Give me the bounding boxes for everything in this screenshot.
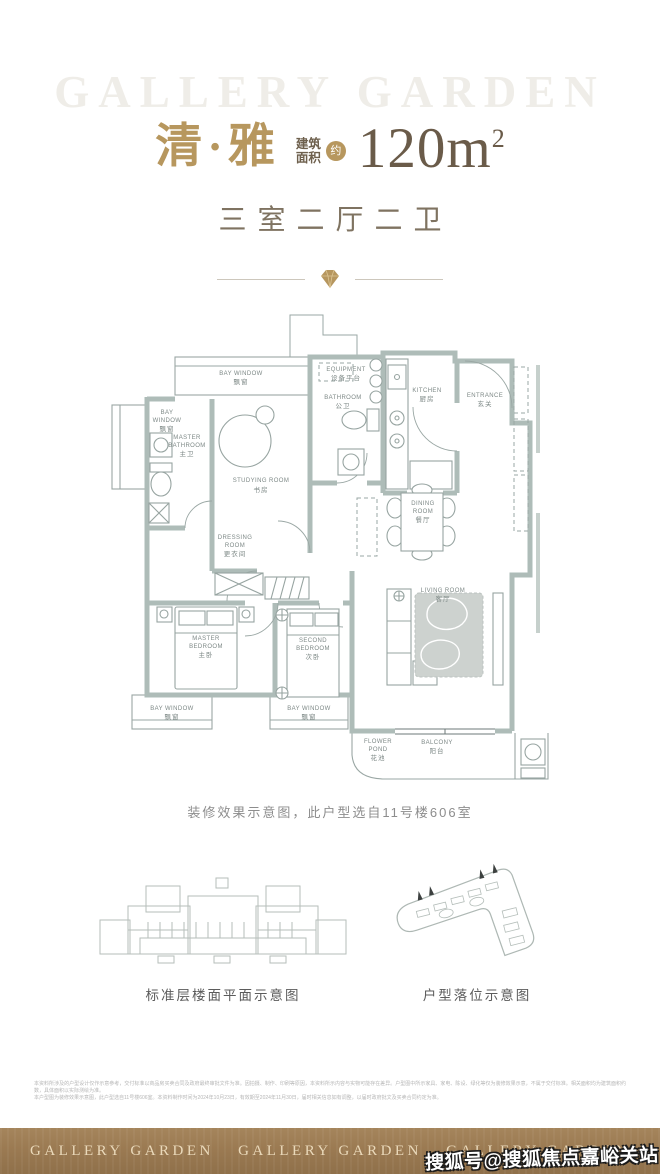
- svg-text:BAY WINDOW: BAY WINDOW: [219, 371, 262, 377]
- area-label: 建筑 面积: [296, 137, 321, 165]
- svg-text:MASTER: MASTER: [192, 636, 220, 642]
- brand-footer-left: GALLERY GARDEN: [30, 1143, 214, 1160]
- svg-text:飘窗: 飘窗: [160, 424, 175, 433]
- svg-text:次卧: 次卧: [306, 652, 321, 661]
- area-exponent: 2: [492, 124, 505, 153]
- svg-text:花池: 花池: [371, 753, 386, 762]
- svg-text:主卧: 主卧: [199, 650, 214, 659]
- poster-page: GALLERY GARDEN 清·雅 建筑 面积 约 120m2 三室二厅二卫: [0, 0, 660, 1174]
- room-label-master-bathroom: MASTER BATHROOM 主卫: [168, 435, 205, 458]
- room-label-bay-window-left: BAY WINDOW 飘窗: [153, 410, 182, 433]
- disclaimer-line1: 本资料所涉及的户型设计仅作示意参考，交付标准以商品房买卖合同及政府最终审批文件为…: [34, 1081, 626, 1095]
- room-label-entrance: ENTRANCE 玄关: [467, 393, 503, 408]
- room-label-equipment: EQUIPMENT 设备平台: [326, 367, 365, 382]
- tv-cabinet: [493, 593, 503, 685]
- svg-text:EQUIPMENT: EQUIPMENT: [326, 367, 365, 373]
- svg-text:ROOM: ROOM: [413, 509, 433, 515]
- floorplate-caption: 标准层楼面平面示意图: [86, 984, 360, 1004]
- approx-badge: 约: [326, 141, 346, 161]
- plan-caption: 装修效果示意图，此户型选自11号楼606室: [0, 802, 660, 821]
- sofa: [387, 589, 411, 685]
- svg-text:STUDYING ROOM: STUDYING ROOM: [233, 478, 290, 484]
- gem-icon: [318, 268, 342, 290]
- svg-text:ROOM: ROOM: [225, 543, 245, 549]
- svg-text:设备平台: 设备平台: [331, 373, 361, 382]
- svg-text:更衣间: 更衣间: [224, 549, 247, 558]
- siteplan-figure: 户型落位示意图: [388, 858, 566, 1004]
- disclaimer-line2: 本户型图为装修效果示意图，此户型选自11号楼606室。本资料制作时间为2024年…: [34, 1095, 626, 1102]
- siteplan-caption: 户型落位示意图: [388, 984, 566, 1004]
- svg-text:ENTRANCE: ENTRANCE: [467, 393, 503, 399]
- floorplan-svg: BAY WINDOW 飘窗 EQUIPMENT 设备平台 BATHROOM 公卫…: [95, 303, 555, 795]
- svg-text:DINING: DINING: [411, 501, 434, 507]
- svg-text:BALCONY: BALCONY: [421, 740, 452, 746]
- svg-text:BATHROOM: BATHROOM: [168, 443, 205, 449]
- room-label-balcony: BALCONY 阳台: [421, 740, 452, 755]
- master-bath-toilet: [150, 463, 172, 472]
- svg-text:MASTER: MASTER: [173, 435, 201, 441]
- svg-text:SECOND: SECOND: [299, 638, 327, 644]
- svg-text:BEDROOM: BEDROOM: [189, 644, 223, 650]
- svg-text:公卫: 公卫: [336, 402, 351, 410]
- svg-text:BATHROOM: BATHROOM: [324, 395, 361, 401]
- svg-text:POND: POND: [369, 747, 388, 753]
- svg-text:餐厅: 餐厅: [416, 515, 431, 524]
- svg-text:FLOWER: FLOWER: [364, 739, 392, 745]
- brand-footer-center: GALLERY GARDEN: [238, 1143, 422, 1160]
- room-label-bathroom: BATHROOM 公卫: [324, 395, 361, 410]
- svg-text:BAY WINDOW: BAY WINDOW: [150, 706, 193, 712]
- room-label-dressing-room: DRESSING ROOM 更衣间: [218, 535, 253, 558]
- floorplan: BAY WINDOW 飘窗 EQUIPMENT 设备平台 BATHROOM 公卫…: [95, 303, 555, 795]
- room-label-flower-pond: FLOWER POND 花池: [364, 739, 392, 762]
- svg-text:KITCHEN: KITCHEN: [412, 388, 441, 394]
- layout-subtitle: 三室二厅二卫: [0, 198, 660, 238]
- title-row: 清·雅 建筑 面积 约 120m2: [0, 120, 660, 174]
- svg-text:飘窗: 飘窗: [165, 712, 180, 721]
- svg-text:书房: 书房: [254, 485, 269, 494]
- divider: [0, 268, 660, 290]
- svg-text:玄关: 玄关: [478, 399, 493, 408]
- bathroom-toilet: [367, 409, 379, 431]
- disclaimer-text: 本资料所涉及的户型设计仅作示意参考，交付标准以商品房买卖合同及政府最终审批文件为…: [34, 1081, 626, 1103]
- room-label-kitchen: KITCHEN 厨房: [412, 388, 441, 403]
- area-value: 120m: [358, 117, 492, 180]
- floorplate-diagram: [86, 872, 360, 972]
- sliding-door: [395, 726, 495, 736]
- svg-text:厨房: 厨房: [420, 394, 435, 403]
- svg-text:BAY WINDOW: BAY WINDOW: [287, 706, 330, 712]
- svg-text:飘窗: 飘窗: [302, 712, 317, 721]
- svg-text:BAY: BAY: [161, 410, 174, 416]
- divider-line-left: [217, 279, 305, 280]
- siteplan-diagram: [388, 858, 566, 972]
- svg-text:BEDROOM: BEDROOM: [296, 646, 330, 652]
- svg-text:DRESSING: DRESSING: [218, 535, 253, 541]
- svg-text:飘窗: 飘窗: [234, 377, 249, 386]
- unit-title: 清·雅: [155, 120, 280, 174]
- svg-text:主卫: 主卫: [180, 449, 195, 458]
- brand-watermark: GALLERY GARDEN: [0, 66, 660, 118]
- divider-line-right: [355, 279, 443, 280]
- floorplate-figure: 标准层楼面平面示意图: [86, 872, 360, 1004]
- svg-text:WINDOW: WINDOW: [153, 418, 182, 424]
- svg-text:阳台: 阳台: [430, 746, 445, 755]
- room-label-studying-room: STUDYING ROOM 书房: [233, 478, 290, 494]
- roof-protrusion: [290, 315, 357, 357]
- living-rug: [415, 593, 483, 677]
- svg-text:客厅: 客厅: [436, 594, 451, 603]
- area-group: 建筑 面积 约: [296, 137, 346, 165]
- area-value-wrap: 120m2: [358, 124, 505, 174]
- svg-text:LIVING ROOM: LIVING ROOM: [421, 588, 465, 594]
